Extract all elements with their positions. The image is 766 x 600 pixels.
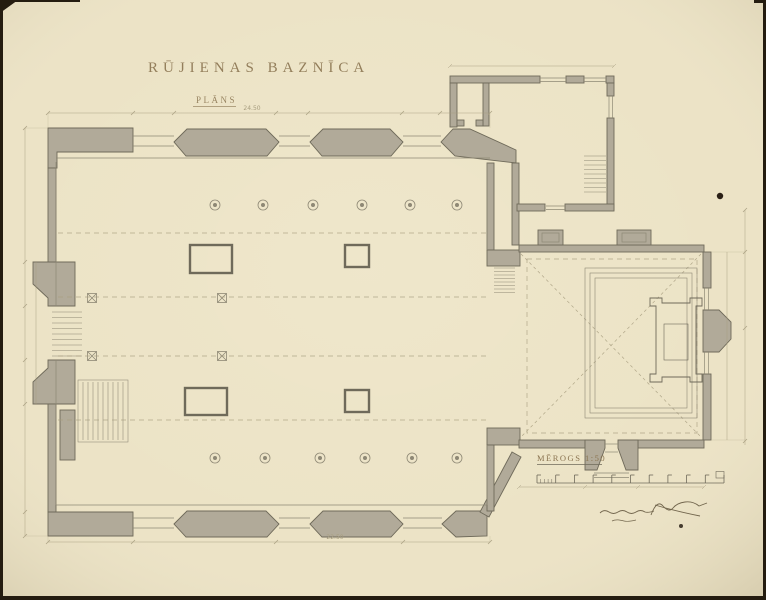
drawing-subtitle: PLĀNS [196,95,237,105]
dim-bottom-overall: 22.50 [326,534,343,541]
dim-top-overall: 24.50 [243,105,260,112]
scale-label: MĒROGS 1:50 [537,453,606,463]
ink-blot [717,193,723,199]
drawing-title: RŪJIENAS BAZNĪCA [148,60,369,76]
floor-plan-drawing: RŪJIENAS BAZNĪCA PLĀNS [0,0,766,600]
paper-vignette [0,0,766,600]
drawing-sheet: RŪJIENAS BAZNĪCA PLĀNS [0,0,766,600]
signature-ink-dot [679,524,683,528]
